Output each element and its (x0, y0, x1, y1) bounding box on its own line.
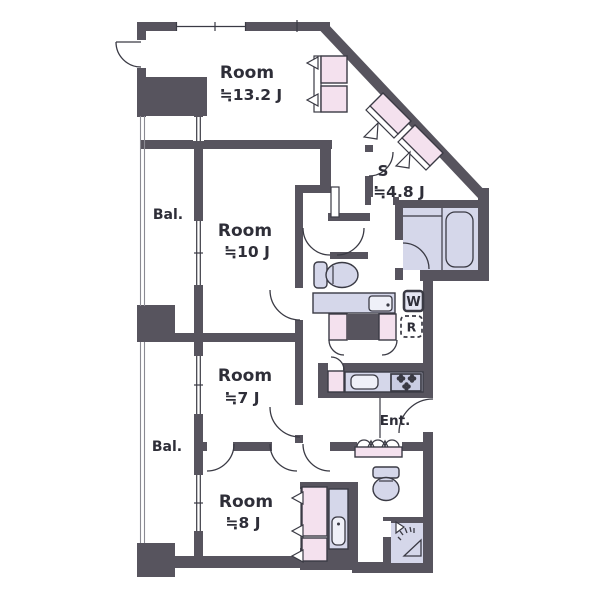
storage-size: ≒4.8 J (373, 183, 425, 201)
balcony-top-label: Bal. (153, 207, 183, 223)
room10-size: ≒10 J (224, 243, 270, 261)
storage-label: S (378, 162, 389, 180)
floor-plan: W R (0, 0, 600, 600)
shoe-cabinet (355, 447, 402, 457)
balcony-bottom-label: Bal. (152, 439, 182, 455)
fridge-box: R (401, 316, 422, 337)
toilet-1 (314, 262, 358, 288)
kitchen-sink (351, 375, 378, 389)
room13-size: ≒13.2 J (220, 86, 282, 104)
room8-label: Room (219, 492, 273, 512)
entrance-label: Ent. (380, 413, 410, 429)
washer-label: W (406, 295, 420, 310)
room7-size: ≒7 J (225, 389, 260, 407)
washer-box: W (404, 291, 423, 311)
window-room8-balcony (193, 475, 204, 531)
toilet-2 (373, 467, 399, 501)
window-room7-balcony (193, 356, 204, 414)
shower-room (391, 522, 423, 563)
fridge-label: R (407, 320, 417, 335)
washbasin-1 (313, 293, 395, 313)
floor-plan-canvas: W R (0, 0, 600, 600)
window-room10-balcony (193, 221, 204, 285)
room8-size: ≒8 J (226, 514, 261, 532)
door-leaf-corridor (331, 187, 339, 217)
washbasin-2 (329, 489, 348, 549)
kitchen-cabinet (328, 371, 344, 392)
room10-label: Room (218, 221, 272, 241)
room7-label: Room (218, 366, 272, 386)
bathroom (403, 208, 478, 270)
window-room13-balcony (193, 117, 204, 141)
room13-label: Room (220, 63, 274, 83)
